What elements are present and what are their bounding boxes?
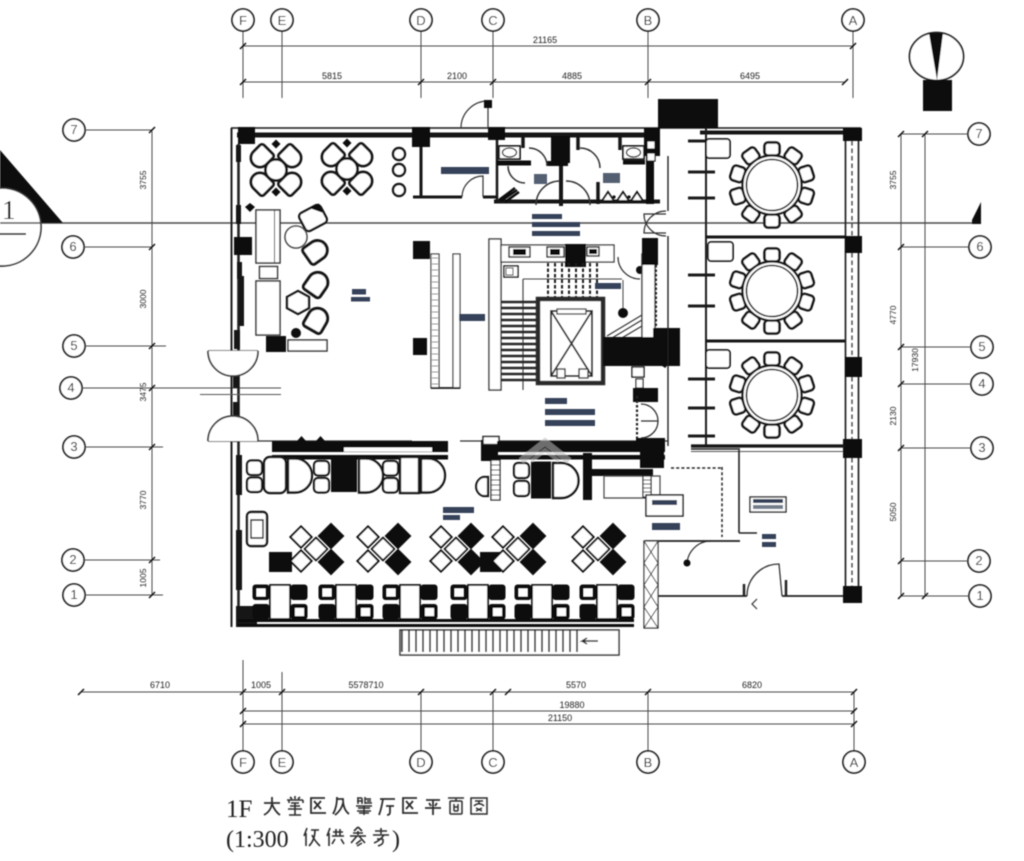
svg-text:6: 6	[69, 239, 76, 254]
svg-text:1005: 1005	[138, 568, 148, 587]
svg-text:6820: 6820	[742, 680, 762, 690]
svg-text:F: F	[239, 755, 247, 770]
svg-text:(1:300: (1:300	[226, 827, 289, 853]
svg-text:1005: 1005	[251, 680, 271, 690]
svg-text:1: 1	[70, 587, 77, 602]
svg-text:3000: 3000	[138, 289, 148, 308]
svg-text:3770: 3770	[138, 490, 148, 509]
svg-text:C: C	[488, 755, 497, 770]
svg-text:E: E	[278, 755, 287, 770]
svg-text:3: 3	[70, 439, 77, 454]
svg-text:2130: 2130	[888, 406, 898, 425]
svg-text:A: A	[849, 13, 858, 28]
svg-text:7: 7	[70, 122, 77, 137]
svg-text:4770: 4770	[888, 305, 898, 324]
svg-text:4: 4	[978, 376, 985, 391]
svg-text:5570: 5570	[566, 680, 586, 690]
svg-text:7: 7	[975, 126, 982, 141]
svg-text:4885: 4885	[562, 71, 582, 81]
svg-text:2: 2	[975, 553, 982, 568]
svg-text:3755: 3755	[888, 170, 898, 189]
svg-text:D: D	[416, 755, 425, 770]
svg-text:1F: 1F	[226, 796, 252, 823]
svg-text:5578710: 5578710	[348, 680, 383, 690]
svg-text:2: 2	[69, 552, 76, 567]
svg-text:3755: 3755	[138, 170, 148, 189]
svg-text:1: 1	[2, 195, 16, 225]
svg-text:21165: 21165	[533, 35, 557, 45]
svg-text:A: A	[850, 755, 859, 770]
svg-text:2100: 2100	[447, 71, 467, 81]
svg-text:19880: 19880	[559, 700, 584, 710]
svg-text:C: C	[488, 13, 497, 28]
svg-text:F: F	[239, 13, 247, 28]
svg-text:5: 5	[70, 338, 77, 353]
svg-text:E: E	[278, 13, 287, 28]
svg-text:3: 3	[978, 440, 985, 455]
svg-text:6: 6	[976, 239, 983, 254]
svg-text:5815: 5815	[322, 71, 342, 81]
svg-text:6495: 6495	[740, 71, 760, 81]
svg-text:1: 1	[976, 588, 983, 603]
svg-text:17930: 17930	[910, 348, 920, 372]
svg-text:4: 4	[67, 380, 74, 395]
svg-text:6710: 6710	[150, 680, 170, 690]
svg-text:B: B	[644, 755, 653, 770]
svg-text:B: B	[644, 13, 653, 28]
svg-text:D: D	[416, 13, 425, 28]
svg-text:5050: 5050	[888, 502, 898, 521]
svg-text:): )	[392, 827, 400, 853]
svg-text:3475: 3475	[138, 382, 148, 401]
svg-text:21150: 21150	[548, 713, 572, 723]
svg-text:5: 5	[978, 339, 985, 354]
